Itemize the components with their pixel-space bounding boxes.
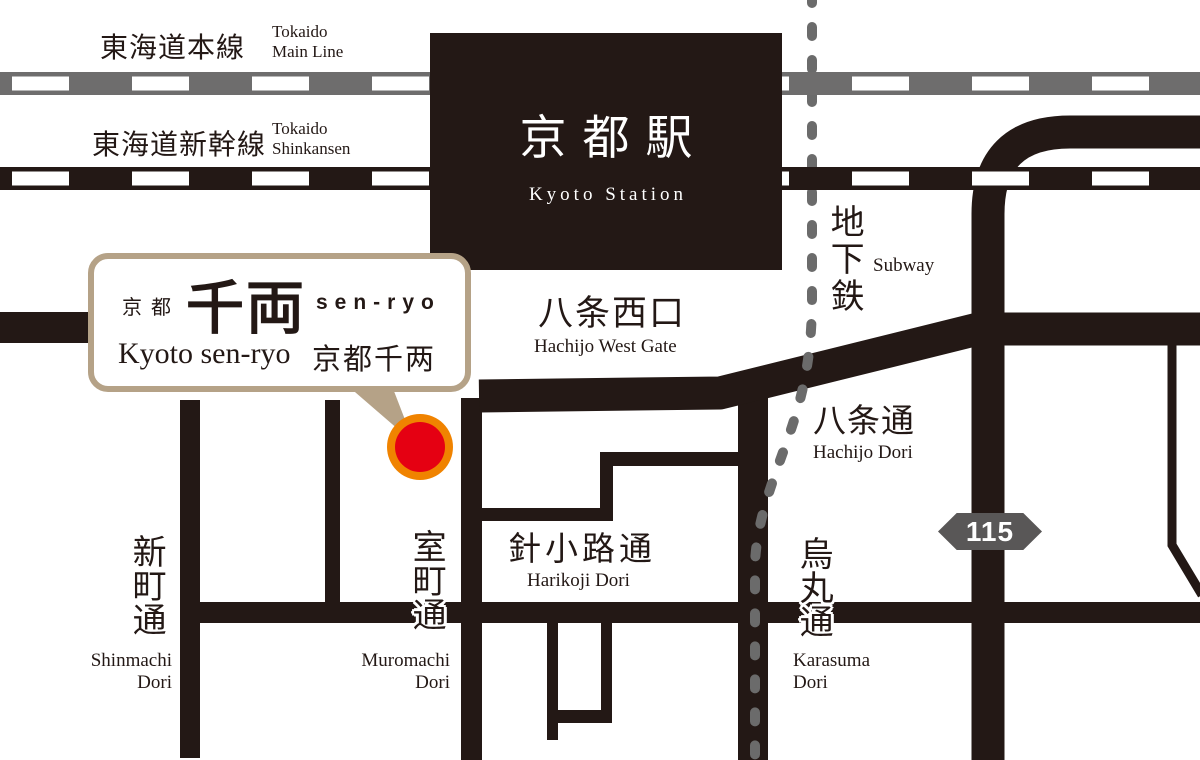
senryo-name-en: Kyoto sen-ryo bbox=[118, 337, 290, 371]
callout-kyoto-prefix: 京都 bbox=[122, 291, 180, 320]
road-minor-vertical bbox=[325, 400, 340, 623]
road-hachijo-west-stub bbox=[0, 312, 95, 343]
hachijo-dori-label-en: Hachijo Dori bbox=[813, 442, 913, 464]
mainline-label-en: Tokaido Main Line bbox=[272, 22, 364, 61]
road-karasuma bbox=[738, 383, 768, 760]
shinmachi-dori-label-jp: 新町通 bbox=[126, 534, 165, 636]
lane-south-connector bbox=[547, 710, 612, 723]
station-label-jp: 京都駅 bbox=[430, 112, 782, 166]
senryo-logo: 千両 bbox=[186, 261, 306, 345]
muromachi-dori-label-en: Muromachi Dori bbox=[356, 650, 450, 694]
road-muromachi bbox=[461, 398, 482, 760]
subway-label-en: Subway bbox=[873, 255, 934, 277]
shinkansen-label-en: Tokaido Shinkansen bbox=[272, 119, 377, 158]
road-shinmachi bbox=[180, 400, 200, 758]
lane-south-right bbox=[601, 623, 612, 722]
senryo-callout[interactable]: 京都 千両 sen-ryo Kyoto sen-ryo 京都千两 bbox=[88, 253, 471, 392]
muromachi-dori-label-jp: 室町通 bbox=[406, 529, 445, 631]
lane-step-lower bbox=[479, 508, 612, 521]
shinmachi-dori-label-en: Shinmachi Dori bbox=[80, 650, 172, 694]
route-115-number: 115 bbox=[966, 516, 1014, 548]
road-thin-east bbox=[1172, 343, 1200, 595]
subway-label-jp: 地下鉄 bbox=[824, 204, 863, 315]
shinkansen-label-jp: 東海道新幹線 bbox=[92, 130, 266, 162]
station-label-en: Kyoto Station bbox=[430, 184, 782, 206]
mainline-label-jp: 東海道本線 bbox=[100, 33, 245, 65]
karasuma-dori-label-jp: 烏丸通 bbox=[793, 536, 832, 638]
karasuma-dori-label-en: Karasuma Dori bbox=[793, 650, 879, 694]
lane-step-upper bbox=[600, 452, 746, 466]
hachijo-west-gate-label-jp: 八条西口 bbox=[538, 294, 686, 334]
senryo-romaji: sen-ryo bbox=[316, 291, 441, 315]
access-map: 東海道本線 Tokaido Main Line 東海道新幹線 Tokaido S… bbox=[0, 0, 1200, 760]
hachijo-west-gate-label-en: Hachijo West Gate bbox=[534, 336, 677, 358]
location-marker[interactable] bbox=[395, 422, 445, 472]
senryo-name-cn: 京都千两 bbox=[312, 336, 436, 378]
hachijo-dori-label-jp: 八条通 bbox=[813, 404, 915, 442]
harikoji-dori-label-en: Harikoji Dori bbox=[527, 570, 630, 592]
harikoji-dori-label-jp: 針小路通 bbox=[508, 532, 656, 570]
route-115-badge: 115 bbox=[938, 513, 1042, 550]
